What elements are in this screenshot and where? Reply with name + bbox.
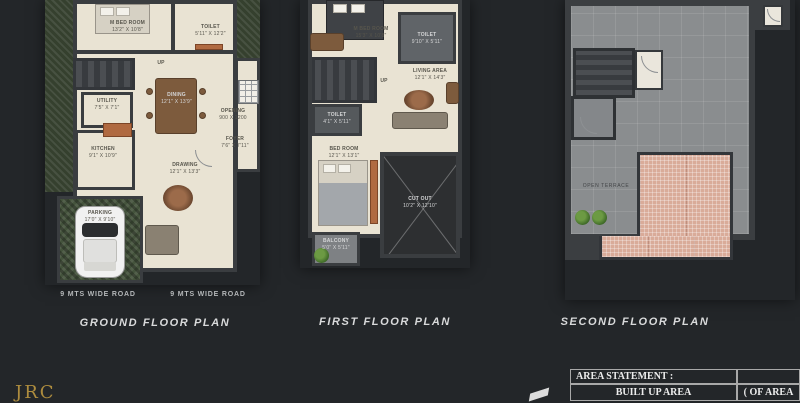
area-statement-table: AREA STATEMENT : BUILT UP AREA ( OF AREA — [570, 369, 800, 400]
road-label-left: 9 MTS WIDE ROAD — [58, 291, 138, 298]
room-label-mbed: M BED ROOM 15'3" X 10'8" — [340, 26, 402, 39]
wall-segment — [73, 50, 237, 54]
room-label-balcony: BALCONY 5'0" X 5'11" — [313, 238, 359, 251]
wardrobe-icon — [370, 160, 378, 224]
kitchen-room — [75, 130, 135, 190]
tiled-terrace-area — [637, 152, 733, 240]
plant-icon — [592, 210, 607, 225]
room-label-open-terrace: OPEN TERRACE — [575, 183, 637, 190]
room-label-foyer: FOYER 7'6" X 7'11" — [215, 136, 255, 149]
area-table-row-cell-right: ( OF AREA — [737, 384, 800, 401]
sofa-icon — [392, 112, 448, 129]
garden-strip-right — [237, 0, 260, 58]
logo-swoosh — [529, 388, 549, 402]
sofa-icon — [145, 225, 179, 255]
room-label-utility: UTILITY 7'5" X 7'1" — [83, 98, 131, 111]
tiled-terrace-area — [599, 236, 733, 260]
wardrobe-icon — [195, 44, 223, 50]
room-label-dining: DINING 12'1" X 13'9" — [149, 92, 204, 105]
floor-plan-poster: M BED ROOM 13'2" X 10'8" TOILET 5'11" X … — [0, 0, 800, 400]
chair-icon — [146, 112, 153, 119]
stair-landing-room — [635, 50, 663, 90]
window-grill-icon — [238, 80, 259, 104]
second-floor-plan: OPEN TERRACE — [565, 0, 795, 300]
armchair-icon — [446, 82, 459, 104]
first-floor-plan: M BED ROOM 15'3" X 10'8" TOILET 9'10" X … — [300, 0, 470, 268]
stairs-icon — [573, 48, 635, 98]
room-label-living: LIVING AREA 12'1" X 14'3" — [400, 68, 460, 81]
room-label-toilet: TOILET 5'11" X 12'2" — [183, 24, 238, 37]
kitchen-counter-icon — [103, 123, 132, 137]
terrace-wall — [565, 240, 599, 260]
wall-segment — [171, 0, 175, 54]
bed-icon — [318, 160, 368, 226]
first-floor-title: FIRST FLOOR PLAN — [295, 316, 475, 328]
up-label: UP — [147, 60, 175, 67]
area-table-header-cell-right — [737, 369, 800, 384]
stairs-icon — [312, 57, 377, 103]
room-label-opening: OPENING 900 X 1200 — [213, 108, 253, 121]
ground-floor-title: GROUND FLOOR PLAN — [55, 317, 255, 329]
stairs-icon — [73, 58, 135, 90]
room-label-parking: PARKING 17'0" X 9'10" — [78, 210, 122, 223]
head-room — [763, 5, 783, 27]
room-label-bed: BED ROOM 12'1" X 13'1" — [314, 146, 374, 159]
dining-table-icon — [155, 78, 197, 134]
plant-icon — [575, 210, 590, 225]
room-label-mbed: M BED ROOM 13'2" X 10'8" — [100, 20, 155, 33]
room-label-drawing: DRAWING 12'1" X 13'3" — [155, 162, 215, 175]
garden-strip-left — [45, 0, 73, 192]
room-label-cutout: CUT OUT 10'2" X 12'10" — [390, 196, 450, 209]
up-label: UP — [372, 78, 396, 85]
rug-icon — [404, 90, 434, 110]
area-table-header-cell: AREA STATEMENT : — [570, 369, 737, 384]
ground-floor-plan: M BED ROOM 13'2" X 10'8" TOILET 5'11" X … — [45, 0, 260, 285]
area-table-row-cell: BUILT UP AREA — [570, 384, 737, 401]
rug-icon — [163, 185, 193, 211]
road-label-right: 9 MTS WIDE ROAD — [168, 291, 248, 298]
room-label-toilet2: TOILET 4'1" X 5'11" — [314, 112, 360, 125]
second-floor-title: SECOND FLOOR PLAN — [540, 316, 730, 328]
room-label-toilet1: TOILET 9'10" X 5'11" — [400, 32, 454, 45]
desk-icon — [310, 33, 344, 51]
chair-icon — [199, 112, 206, 119]
room-label-kitchen: KITCHEN 9'1" X 10'9" — [77, 146, 129, 159]
utility-room — [571, 96, 616, 140]
